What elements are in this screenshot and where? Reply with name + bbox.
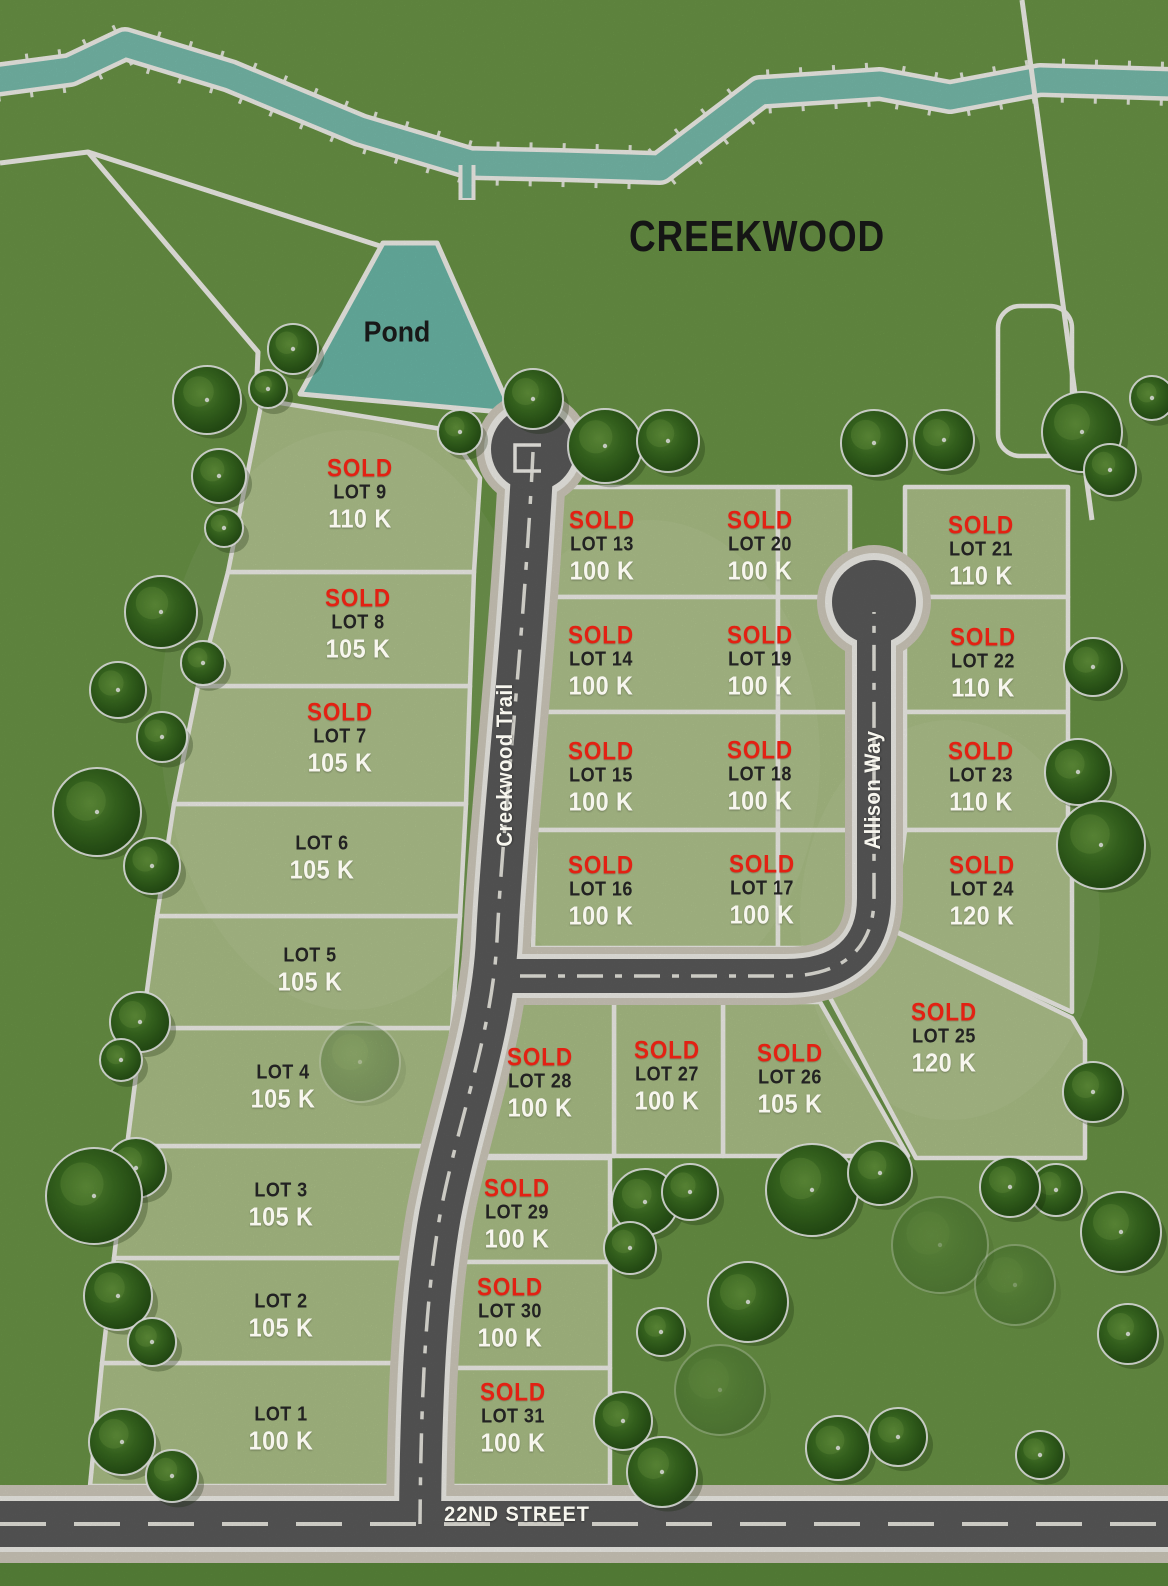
lot-label-lot-16: SOLDLOT 16100 K bbox=[568, 853, 634, 930]
site-plan-map: CREEKWOOD Pond Creekwood Trail Allison W… bbox=[0, 0, 1168, 1586]
lot-price: 120 K bbox=[912, 1049, 977, 1077]
lot-price: 105 K bbox=[249, 1203, 314, 1231]
lot-label-lot-29: SOLDLOT 29100 K bbox=[484, 1176, 550, 1253]
lot-label-lot-17: SOLDLOT 17100 K bbox=[729, 852, 795, 929]
lot-label-lot-14: SOLDLOT 14100 K bbox=[568, 623, 634, 700]
lot-label-lot-18: SOLDLOT 18100 K bbox=[727, 738, 793, 815]
lot-label-lot-3: LOT 3105 K bbox=[249, 1180, 314, 1231]
sold-status: SOLD bbox=[949, 853, 1015, 879]
lot-price: 110 K bbox=[328, 505, 391, 533]
sold-status: SOLD bbox=[634, 1038, 700, 1064]
street-label-creekwood-trail: Creekwood Trail bbox=[492, 683, 518, 846]
lot-label-lot-20: SOLDLOT 20100 K bbox=[727, 508, 793, 585]
lot-number: LOT 23 bbox=[949, 765, 1013, 788]
lot-number: LOT 7 bbox=[313, 726, 366, 749]
lot-label-lot-22: SOLDLOT 22110 K bbox=[950, 625, 1016, 702]
sold-status: SOLD bbox=[729, 852, 795, 878]
lot-price: 100 K bbox=[478, 1324, 543, 1352]
lot-label-lot-1: LOT 1100 K bbox=[249, 1404, 314, 1455]
lot-label-lot-4: LOT 4105 K bbox=[251, 1062, 316, 1113]
lot-price: 110 K bbox=[949, 788, 1012, 816]
sold-status: SOLD bbox=[307, 700, 373, 726]
lot-number: LOT 24 bbox=[950, 879, 1014, 902]
sold-status: SOLD bbox=[727, 508, 793, 534]
sold-status: SOLD bbox=[480, 1380, 546, 1406]
lot-number: LOT 19 bbox=[728, 649, 792, 672]
lot-price: 105 K bbox=[308, 749, 373, 777]
sold-status: SOLD bbox=[327, 456, 393, 482]
lot-number: LOT 27 bbox=[635, 1064, 699, 1087]
lot-price: 110 K bbox=[951, 674, 1014, 702]
lot-number: LOT 20 bbox=[728, 534, 792, 557]
sold-status: SOLD bbox=[507, 1045, 573, 1071]
lot-number: LOT 5 bbox=[283, 945, 336, 968]
sold-status: SOLD bbox=[757, 1041, 823, 1067]
lot-price: 100 K bbox=[249, 1427, 314, 1455]
lot-price: 105 K bbox=[758, 1090, 823, 1118]
lot-number: LOT 17 bbox=[730, 878, 794, 901]
lot-label-lot-21: SOLDLOT 21110 K bbox=[948, 513, 1014, 590]
sold-status: SOLD bbox=[569, 508, 635, 534]
lot-label-lot-2: LOT 2105 K bbox=[249, 1291, 314, 1342]
lot-label-lot-24: SOLDLOT 24120 K bbox=[949, 853, 1015, 930]
lot-label-lot-5: LOT 5105 K bbox=[278, 945, 343, 996]
lot-price: 100 K bbox=[569, 902, 634, 930]
lot-number: LOT 1 bbox=[254, 1404, 307, 1427]
lot-price: 105 K bbox=[251, 1085, 316, 1113]
lot-price: 100 K bbox=[508, 1094, 573, 1122]
street-label-22nd-street: 22ND STREET bbox=[444, 1503, 590, 1527]
sold-status: SOLD bbox=[477, 1275, 543, 1301]
lot-price: 100 K bbox=[481, 1429, 546, 1457]
lot-label-lot-30: SOLDLOT 30100 K bbox=[477, 1275, 543, 1352]
lot-price: 100 K bbox=[728, 787, 793, 815]
lot-number: LOT 22 bbox=[951, 651, 1015, 674]
sold-status: SOLD bbox=[568, 739, 634, 765]
lot-label-lot-9: SOLDLOT 9110 K bbox=[327, 456, 393, 533]
lot-label-lot-27: SOLDLOT 27100 K bbox=[634, 1038, 700, 1115]
lot-number: LOT 16 bbox=[569, 879, 633, 902]
lot-label-lot-15: SOLDLOT 15100 K bbox=[568, 739, 634, 816]
sold-status: SOLD bbox=[950, 625, 1016, 651]
lot-number: LOT 13 bbox=[570, 534, 634, 557]
lot-number: LOT 3 bbox=[254, 1180, 307, 1203]
lot-label-lot-23: SOLDLOT 23110 K bbox=[948, 739, 1014, 816]
lot-price: 100 K bbox=[635, 1087, 700, 1115]
lot-price: 100 K bbox=[569, 788, 634, 816]
lot-number: LOT 28 bbox=[508, 1071, 572, 1094]
lot-label-lot-8: SOLDLOT 8105 K bbox=[325, 586, 391, 663]
lot-number: LOT 25 bbox=[912, 1026, 976, 1049]
lot-label-lot-25: SOLDLOT 25120 K bbox=[911, 1000, 977, 1077]
lot-number: LOT 18 bbox=[728, 764, 792, 787]
lot-price: 100 K bbox=[485, 1225, 550, 1253]
lot-number: LOT 6 bbox=[295, 833, 348, 856]
lot-price: 100 K bbox=[570, 557, 635, 585]
lot-label-lot-13: SOLDLOT 13100 K bbox=[569, 508, 635, 585]
lot-price: 100 K bbox=[728, 672, 793, 700]
pond-label: Pond bbox=[364, 317, 431, 350]
lot-number: LOT 15 bbox=[569, 765, 633, 788]
lot-number: LOT 8 bbox=[331, 612, 384, 635]
lot-label-lot-7: SOLDLOT 7105 K bbox=[307, 700, 373, 777]
lot-price: 100 K bbox=[728, 557, 793, 585]
lot-number: LOT 4 bbox=[256, 1062, 309, 1085]
lot-price: 120 K bbox=[950, 902, 1015, 930]
lot-price: 105 K bbox=[326, 635, 391, 663]
lot-number: LOT 9 bbox=[333, 482, 386, 505]
lot-label-lot-6: LOT 6105 K bbox=[290, 833, 355, 884]
street-label-allison-way: Allison Way bbox=[860, 730, 886, 849]
sold-status: SOLD bbox=[325, 586, 391, 612]
lot-label-lot-31: SOLDLOT 31100 K bbox=[480, 1380, 546, 1457]
lot-number: LOT 21 bbox=[949, 539, 1013, 562]
lot-number: LOT 31 bbox=[481, 1406, 545, 1429]
lot-price: 100 K bbox=[730, 901, 795, 929]
sold-status: SOLD bbox=[568, 623, 634, 649]
sold-status: SOLD bbox=[948, 739, 1014, 765]
map-title: CREEKWOOD bbox=[629, 212, 885, 262]
lot-label-lot-26: SOLDLOT 26105 K bbox=[757, 1041, 823, 1118]
lot-number: LOT 26 bbox=[758, 1067, 822, 1090]
sold-status: SOLD bbox=[484, 1176, 550, 1202]
sold-status: SOLD bbox=[948, 513, 1014, 539]
lot-number: LOT 30 bbox=[478, 1301, 542, 1324]
lot-price: 105 K bbox=[249, 1314, 314, 1342]
sold-status: SOLD bbox=[727, 738, 793, 764]
lot-price: 105 K bbox=[290, 856, 355, 884]
lot-number: LOT 14 bbox=[569, 649, 633, 672]
lot-price: 105 K bbox=[278, 968, 343, 996]
lot-number: LOT 2 bbox=[254, 1291, 307, 1314]
lot-price: 110 K bbox=[949, 562, 1012, 590]
sold-status: SOLD bbox=[568, 853, 634, 879]
lot-label-lot-19: SOLDLOT 19100 K bbox=[727, 623, 793, 700]
lot-label-lot-28: SOLDLOT 28100 K bbox=[507, 1045, 573, 1122]
lot-price: 100 K bbox=[569, 672, 634, 700]
lot-number: LOT 29 bbox=[485, 1202, 549, 1225]
sold-status: SOLD bbox=[911, 1000, 977, 1026]
sold-status: SOLD bbox=[727, 623, 793, 649]
